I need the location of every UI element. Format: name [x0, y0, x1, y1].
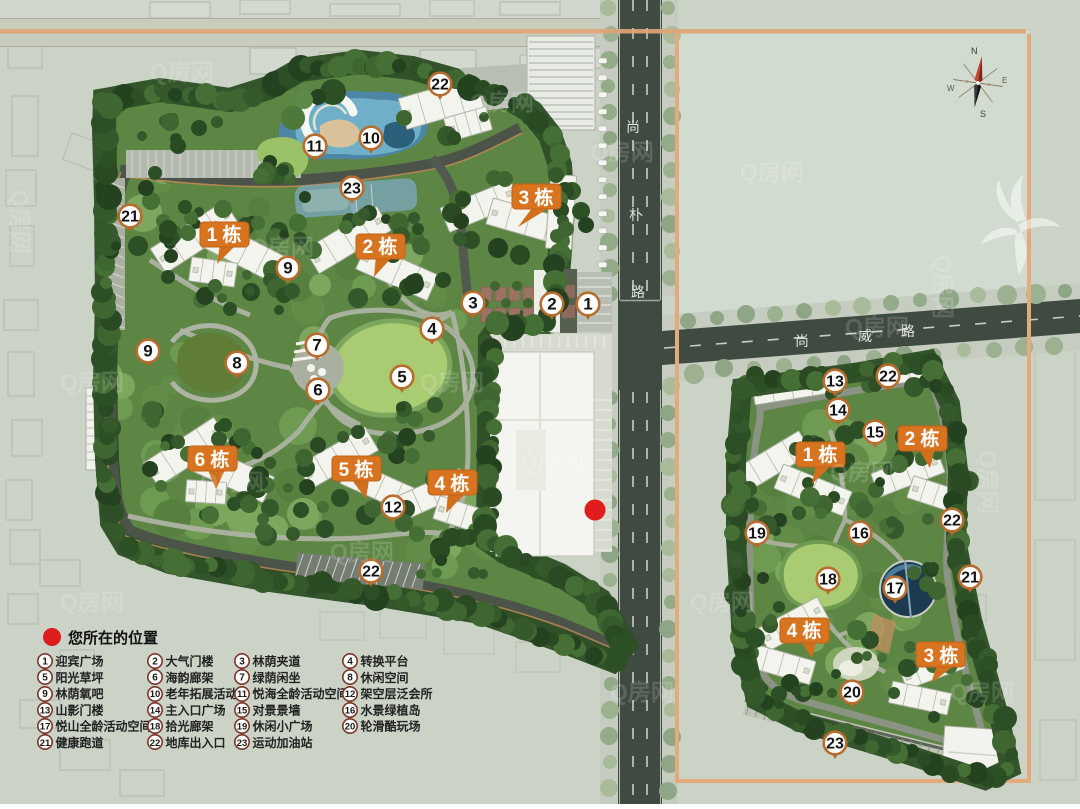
svg-text:8: 8 [232, 354, 241, 373]
svg-text:7: 7 [312, 336, 321, 355]
svg-text:Q房网: Q房网 [830, 459, 894, 485]
svg-text:20: 20 [843, 685, 861, 702]
svg-text:10: 10 [150, 689, 161, 700]
svg-text:S: S [980, 109, 986, 119]
svg-text:21: 21 [121, 209, 139, 226]
svg-text:18: 18 [150, 722, 161, 733]
svg-text:22: 22 [431, 77, 449, 94]
svg-text:Q房网: Q房网 [975, 450, 1001, 514]
svg-text:6: 6 [152, 673, 158, 684]
svg-text:Q房网: Q房网 [610, 679, 674, 705]
svg-text:悦山全龄活动空间: 悦山全龄活动空间 [56, 719, 152, 734]
svg-text:朴: 朴 [629, 207, 643, 223]
svg-text:17: 17 [886, 581, 904, 598]
svg-text:6: 6 [313, 381, 322, 400]
svg-text:休闲小广场: 休闲小广场 [252, 719, 313, 734]
svg-text:悦海全龄活动空间: 悦海全龄活动空间 [253, 686, 349, 701]
svg-text:Q房网: Q房网 [470, 89, 534, 115]
svg-text:21: 21 [40, 738, 51, 749]
svg-text:21: 21 [961, 570, 979, 587]
svg-text:5 栋: 5 栋 [339, 458, 374, 481]
svg-text:3 栋: 3 栋 [924, 644, 959, 667]
svg-text:Q房网: Q房网 [150, 59, 214, 85]
svg-text:9: 9 [42, 689, 48, 700]
svg-text:2: 2 [152, 656, 158, 667]
svg-text:19: 19 [237, 722, 248, 733]
svg-text:9: 9 [143, 342, 152, 361]
svg-text:15: 15 [237, 705, 248, 716]
svg-text:12: 12 [384, 500, 402, 517]
svg-text:尚: 尚 [626, 119, 640, 135]
svg-text:Q房网: Q房网 [60, 369, 124, 395]
svg-text:尚: 尚 [795, 333, 809, 349]
svg-text:7: 7 [239, 673, 245, 684]
svg-text:15: 15 [866, 425, 884, 442]
svg-text:2 栋: 2 栋 [905, 427, 940, 450]
svg-text:绿荫闲坐: 绿荫闲坐 [253, 670, 301, 685]
svg-text:3 栋: 3 栋 [519, 186, 554, 209]
svg-text:拾光廊架: 拾光廊架 [166, 719, 214, 734]
svg-text:老年拓展活动: 老年拓展活动 [166, 686, 238, 701]
svg-text:Q房网: Q房网 [930, 255, 956, 319]
svg-text:22: 22 [150, 738, 161, 749]
svg-text:22: 22 [943, 513, 961, 530]
svg-text:1: 1 [42, 656, 48, 667]
svg-text:12: 12 [345, 689, 356, 700]
svg-text:Q房网: Q房网 [60, 589, 124, 615]
svg-text:阳光草坪: 阳光草坪 [56, 670, 104, 685]
svg-text:17: 17 [40, 722, 51, 733]
svg-text:海韵廊架: 海韵廊架 [166, 670, 214, 685]
svg-text:Q房网: Q房网 [590, 139, 654, 165]
svg-text:林荫氧吧: 林荫氧吧 [56, 686, 104, 701]
svg-text:Q房网: Q房网 [250, 234, 314, 260]
svg-text:5: 5 [42, 673, 48, 684]
svg-text:22: 22 [362, 564, 380, 581]
svg-text:18: 18 [819, 572, 837, 589]
svg-text:您所在的位置: 您所在的位置 [67, 629, 158, 647]
svg-text:地库出入口: 地库出入口 [166, 735, 226, 750]
svg-text:迎宾广场: 迎宾广场 [56, 654, 104, 669]
svg-text:转换平台: 转换平台 [361, 654, 409, 669]
svg-text:W: W [947, 84, 955, 93]
svg-text:22: 22 [879, 369, 897, 386]
svg-text:8: 8 [347, 673, 353, 684]
svg-text:20: 20 [345, 722, 356, 733]
svg-text:Q房网: Q房网 [200, 469, 264, 495]
svg-text:6 栋: 6 栋 [195, 448, 230, 471]
svg-text:对景景墙: 对景景墙 [253, 702, 301, 717]
svg-text:架空层泛会所: 架空层泛会所 [360, 686, 433, 701]
svg-text:大气门楼: 大气门楼 [166, 654, 214, 669]
svg-text:23: 23 [237, 738, 248, 749]
svg-text:14: 14 [829, 403, 847, 420]
svg-text:运动加油站: 运动加油站 [253, 735, 313, 750]
svg-text:2: 2 [547, 295, 556, 314]
svg-text:Q房网: Q房网 [330, 539, 394, 565]
svg-text:健康跑道: 健康跑道 [56, 735, 104, 750]
svg-text:11: 11 [307, 139, 324, 156]
svg-text:3: 3 [239, 656, 245, 667]
svg-text:10: 10 [362, 131, 380, 148]
svg-text:E: E [1002, 76, 1007, 85]
svg-text:Q房网: Q房网 [420, 369, 484, 395]
svg-text:Q房网: Q房网 [845, 314, 909, 340]
svg-text:2 栋: 2 栋 [363, 235, 398, 258]
svg-text:11: 11 [237, 689, 248, 700]
svg-text:23: 23 [826, 736, 844, 753]
svg-text:轮滑酷玩场: 轮滑酷玩场 [361, 719, 421, 734]
svg-text:13: 13 [40, 705, 51, 716]
svg-text:4: 4 [427, 320, 437, 339]
svg-text:Q房网: Q房网 [740, 159, 804, 185]
svg-text:1: 1 [583, 295, 592, 314]
svg-text:16: 16 [851, 526, 869, 543]
svg-text:1 栋: 1 栋 [207, 223, 242, 246]
svg-text:9: 9 [283, 259, 292, 278]
svg-text:山影门楼: 山影门楼 [56, 702, 104, 717]
svg-text:Q房网: Q房网 [520, 449, 584, 475]
svg-text:主入口广场: 主入口广场 [166, 702, 226, 717]
svg-text:13: 13 [826, 374, 844, 391]
svg-text:4 栋: 4 栋 [435, 472, 470, 495]
svg-text:5: 5 [397, 368, 406, 387]
svg-text:4: 4 [347, 656, 353, 667]
svg-text:N: N [971, 46, 978, 56]
svg-text:19: 19 [748, 526, 766, 543]
svg-text:23: 23 [343, 181, 361, 198]
svg-text:4 栋: 4 栋 [787, 619, 822, 642]
svg-text:Q房网: Q房网 [950, 679, 1014, 705]
svg-text:3: 3 [468, 294, 477, 313]
svg-text:水景绿植岛: 水景绿植岛 [361, 702, 421, 717]
svg-text:14: 14 [150, 705, 161, 716]
svg-text:休闲空间: 休闲空间 [360, 670, 409, 685]
svg-text:Q房网: Q房网 [7, 190, 33, 254]
svg-text:路: 路 [631, 284, 645, 300]
svg-text:Q房网: Q房网 [690, 589, 754, 615]
svg-text:16: 16 [345, 705, 356, 716]
svg-text:林荫夹道: 林荫夹道 [253, 654, 301, 669]
